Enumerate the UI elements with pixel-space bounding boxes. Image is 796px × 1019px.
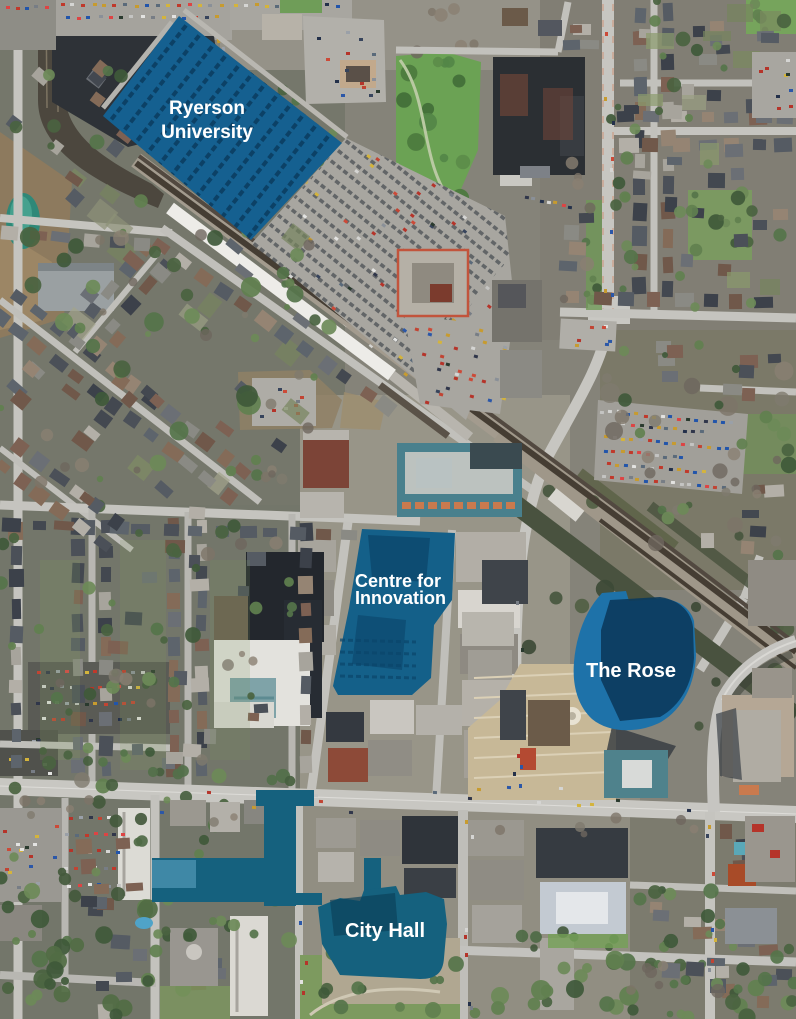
svg-text:Ryerson: Ryerson <box>169 98 245 119</box>
svg-text:Innovation: Innovation <box>355 588 446 608</box>
svg-text:The Rose: The Rose <box>586 660 676 682</box>
svg-text:City Hall: City Hall <box>345 920 425 942</box>
svg-text:University: University <box>161 122 253 143</box>
